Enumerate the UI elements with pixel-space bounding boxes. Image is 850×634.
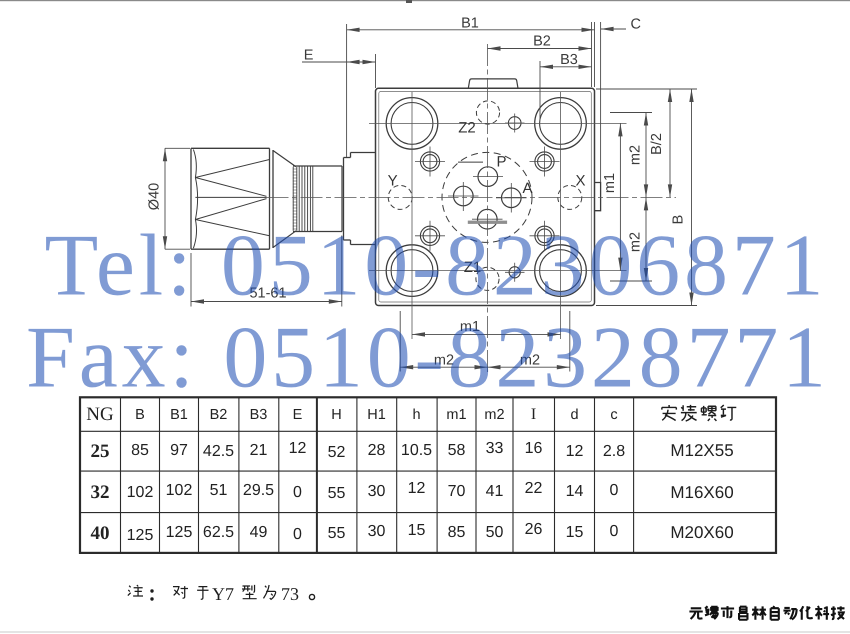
svg-text:30: 30 xyxy=(368,523,386,540)
svg-text:21: 21 xyxy=(250,442,268,459)
svg-text:73: 73 xyxy=(281,584,299,604)
svg-text:0: 0 xyxy=(293,484,302,501)
svg-text:B1: B1 xyxy=(461,16,479,32)
svg-text:P: P xyxy=(496,154,506,171)
svg-text:E: E xyxy=(304,48,314,64)
svg-text:C: C xyxy=(630,17,640,33)
svg-text:26: 26 xyxy=(525,521,543,538)
svg-text:Y7: Y7 xyxy=(212,584,234,604)
svg-text:16: 16 xyxy=(525,440,543,457)
svg-text:50: 50 xyxy=(486,524,504,541)
svg-text:I: I xyxy=(531,406,536,423)
svg-text:d: d xyxy=(570,407,578,423)
svg-text:12: 12 xyxy=(289,440,307,457)
svg-text:125: 125 xyxy=(166,524,193,541)
svg-text:52: 52 xyxy=(328,444,346,461)
svg-text:28: 28 xyxy=(368,442,386,459)
svg-text:H: H xyxy=(331,407,341,423)
svg-text:51: 51 xyxy=(210,482,228,499)
svg-text:125: 125 xyxy=(127,527,154,544)
svg-text:85: 85 xyxy=(131,442,149,459)
svg-text:25: 25 xyxy=(91,441,110,462)
svg-text:Z2: Z2 xyxy=(458,120,476,137)
svg-text:B3: B3 xyxy=(560,52,578,68)
svg-text:B1: B1 xyxy=(170,407,188,423)
svg-text:70: 70 xyxy=(448,483,466,500)
svg-text:33: 33 xyxy=(486,440,504,457)
svg-text:B: B xyxy=(135,407,145,423)
svg-text:2.8: 2.8 xyxy=(603,443,625,460)
svg-text:49: 49 xyxy=(250,524,268,541)
svg-text:97: 97 xyxy=(170,442,188,459)
svg-text:14: 14 xyxy=(566,483,584,500)
svg-text:c: c xyxy=(610,407,617,423)
svg-text:M12X55: M12X55 xyxy=(670,441,733,460)
svg-text:30: 30 xyxy=(368,483,386,500)
svg-text:41: 41 xyxy=(486,483,504,500)
svg-text:NG: NG xyxy=(86,404,114,425)
svg-text:0: 0 xyxy=(610,523,619,540)
svg-text:55: 55 xyxy=(328,485,346,502)
svg-text:22: 22 xyxy=(525,480,543,497)
svg-text:62.5: 62.5 xyxy=(203,524,234,541)
svg-text:Y: Y xyxy=(388,173,398,190)
svg-text:M16X60: M16X60 xyxy=(670,483,733,502)
svg-text:Ø40: Ø40 xyxy=(147,183,163,210)
svg-text:m2: m2 xyxy=(628,145,644,165)
svg-text:85: 85 xyxy=(448,524,466,541)
svg-text:42.5: 42.5 xyxy=(203,443,234,460)
svg-text:H1: H1 xyxy=(367,407,386,423)
svg-text:M20X60: M20X60 xyxy=(670,523,733,542)
svg-text:40: 40 xyxy=(91,523,110,544)
svg-text:12: 12 xyxy=(566,443,584,460)
svg-text:12: 12 xyxy=(408,480,426,497)
svg-text:Tel: 0510-82306871: Tel: 0510-82306871 xyxy=(45,218,824,315)
svg-text:B3: B3 xyxy=(250,407,268,423)
svg-text:32: 32 xyxy=(91,482,110,503)
svg-text:102: 102 xyxy=(127,484,154,501)
svg-text:m2: m2 xyxy=(484,407,504,423)
svg-text:10.5: 10.5 xyxy=(401,442,432,459)
svg-text:B/2: B/2 xyxy=(649,133,665,155)
svg-text:15: 15 xyxy=(408,522,426,539)
svg-text:B2: B2 xyxy=(533,34,551,50)
svg-text:X: X xyxy=(575,173,585,190)
svg-text:102: 102 xyxy=(166,482,193,499)
svg-text:0: 0 xyxy=(610,482,619,499)
svg-text:m1: m1 xyxy=(446,407,466,423)
svg-text:h: h xyxy=(412,407,420,423)
svg-text:B2: B2 xyxy=(210,407,228,423)
svg-text:A: A xyxy=(522,180,532,197)
svg-text:0: 0 xyxy=(293,526,302,543)
svg-text:55: 55 xyxy=(328,525,346,542)
svg-text:E: E xyxy=(293,407,303,423)
svg-text:15: 15 xyxy=(566,524,584,541)
svg-text:m1: m1 xyxy=(602,173,618,193)
svg-text:Fax: 0510-82328771: Fax: 0510-82328771 xyxy=(26,310,826,407)
svg-text:58: 58 xyxy=(448,442,466,459)
svg-text:29.5: 29.5 xyxy=(243,482,274,499)
